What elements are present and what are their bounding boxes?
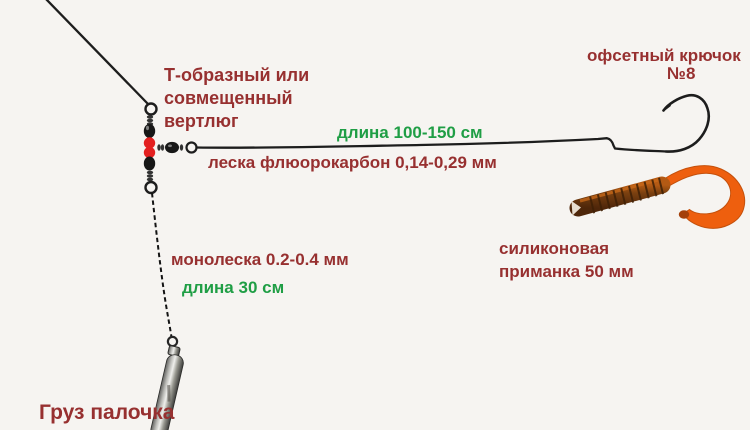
- leader-material-label: леска флюорокарбон 0,14-0,29 мм: [208, 153, 497, 173]
- red-bead-bottom: [144, 147, 155, 158]
- hook-label: офсетный крючок: [587, 46, 741, 66]
- swivel-label-line1: Т-образный или: [164, 64, 309, 87]
- leader-length-label: длина 100-150 см: [337, 123, 483, 143]
- swivel-label-line2: совмещенный: [164, 87, 309, 110]
- dropper-length-label: длина 30 см: [182, 278, 284, 298]
- fishing-rig-diagram: Т-образный или совмещенный вертлюг офсет…: [0, 0, 750, 430]
- hook-size-label: №8: [667, 64, 695, 84]
- bait-label: силиконовая приманка 50 мм: [499, 237, 634, 283]
- bait-label-line1: силиконовая: [499, 237, 634, 260]
- swivel-label-line3: вертлюг: [164, 110, 309, 133]
- silicone-bait: [572, 166, 745, 229]
- bait-tail-tip: [679, 210, 689, 218]
- main-line: [45, 0, 148, 104]
- main-line-material-label: монолеска 0.2-0.4 мм: [171, 250, 349, 270]
- weight-label: Груз палочка: [39, 401, 174, 425]
- dropper-line: [152, 193, 172, 338]
- swivel-label: Т-образный или совмещенный вертлюг: [164, 64, 309, 133]
- bait-label-line2: приманка 50 мм: [499, 260, 634, 283]
- offset-hook: [664, 95, 709, 151]
